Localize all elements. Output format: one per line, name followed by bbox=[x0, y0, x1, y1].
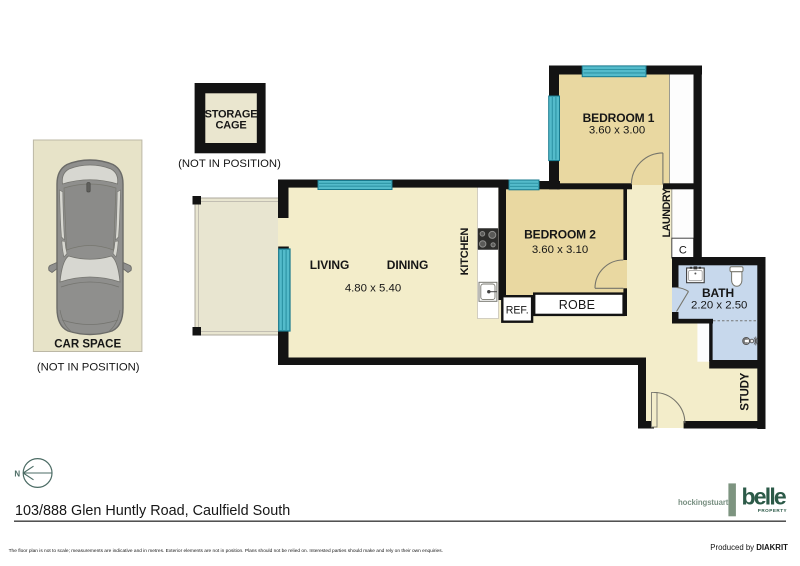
svg-text:3.60 x 3.00: 3.60 x 3.00 bbox=[589, 125, 645, 137]
svg-text:(NOT IN POSITION): (NOT IN POSITION) bbox=[37, 362, 140, 374]
svg-text:(NOT IN POSITION): (NOT IN POSITION) bbox=[178, 158, 281, 170]
svg-text:belle: belle bbox=[742, 484, 786, 510]
svg-text:103/888 Glen Huntly Road, Caul: 103/888 Glen Huntly Road, Caulfield Sout… bbox=[15, 503, 290, 519]
svg-text:REF.: REF. bbox=[506, 305, 529, 317]
svg-text:KITCHEN: KITCHEN bbox=[459, 228, 471, 276]
svg-text:LAUNDRY: LAUNDRY bbox=[661, 187, 673, 237]
svg-text:PROPERTY: PROPERTY bbox=[758, 508, 787, 513]
svg-text:The floor plan is not to scale: The floor plan is not to scale; measurem… bbox=[9, 548, 443, 554]
svg-text:BEDROOM 1: BEDROOM 1 bbox=[583, 111, 655, 125]
svg-text:2.20 x 2.50: 2.20 x 2.50 bbox=[691, 300, 747, 312]
svg-text:ROBE: ROBE bbox=[559, 298, 596, 312]
svg-text:STUDY: STUDY bbox=[739, 372, 752, 410]
svg-text:LIVING: LIVING bbox=[310, 258, 349, 272]
svg-text:CAR SPACE: CAR SPACE bbox=[54, 339, 121, 351]
svg-text:C: C bbox=[679, 244, 687, 256]
svg-text:BATH: BATH bbox=[702, 286, 734, 300]
svg-text:N: N bbox=[14, 469, 20, 478]
svg-text:CAGE: CAGE bbox=[216, 120, 247, 132]
svg-text:hockingstuart: hockingstuart bbox=[678, 498, 729, 507]
svg-text:3.60 x 3.10: 3.60 x 3.10 bbox=[532, 244, 588, 256]
svg-text:STORAGE: STORAGE bbox=[205, 108, 258, 120]
svg-text:DINING: DINING bbox=[387, 258, 428, 272]
svg-text:4.80 x 5.40: 4.80 x 5.40 bbox=[345, 283, 401, 295]
svg-text:Produced by DIAKRIT: Produced by DIAKRIT bbox=[710, 543, 788, 552]
svg-text:BEDROOM 2: BEDROOM 2 bbox=[524, 228, 596, 242]
